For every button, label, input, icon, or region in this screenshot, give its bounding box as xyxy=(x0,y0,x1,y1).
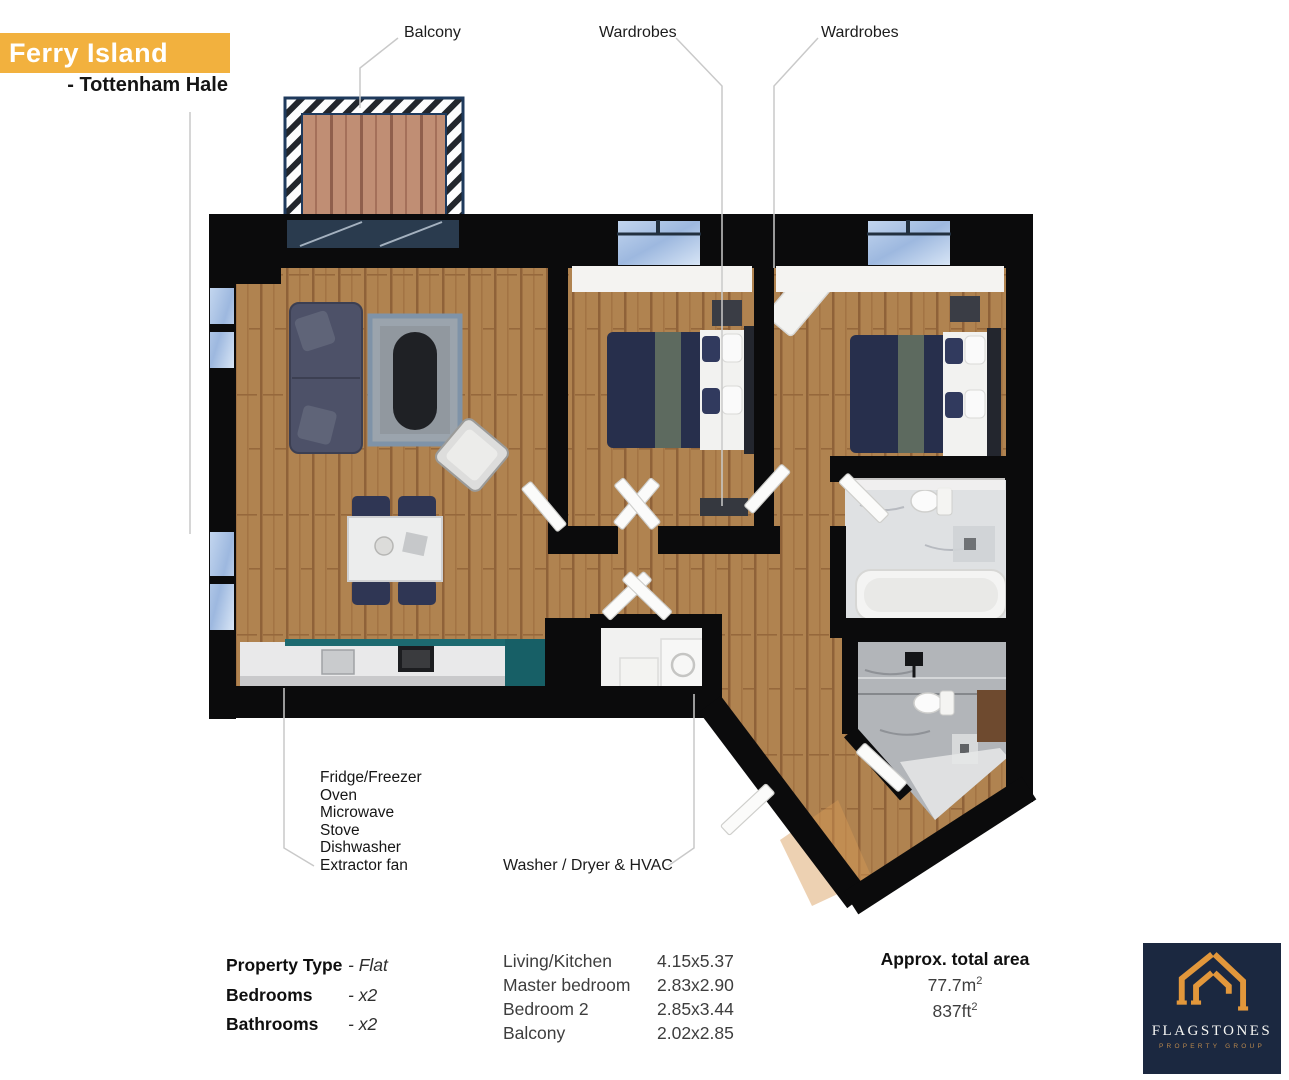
development-banner: Ferry Island xyxy=(0,33,230,73)
property-type-value: - Flat xyxy=(348,955,388,976)
total-area-imperial: 837ft2 xyxy=(872,1001,1038,1022)
appliance-item: Oven xyxy=(320,787,422,805)
total-area-metric: 77.7m2 xyxy=(872,975,1038,996)
appliance-item: Microwave xyxy=(320,804,422,822)
bedrooms-label: Bedrooms xyxy=(226,985,313,1006)
development-name: Ferry Island xyxy=(0,38,168,69)
bathrooms-label: Bathrooms xyxy=(226,1014,318,1035)
logo-name: FLAGSTONES xyxy=(1152,1023,1273,1040)
bedroom2-bed xyxy=(850,328,1001,460)
balcony-glass-door xyxy=(287,220,459,248)
total-area-title: Approx. total area xyxy=(872,949,1038,970)
dim-room-2: Bedroom 2 xyxy=(503,999,589,1020)
floorplan-page: Ferry Island - Tottenham Hale Balcony Wa… xyxy=(0,0,1289,1080)
dim-room-0: Living/Kitchen xyxy=(503,951,612,972)
floor-plan-drawing xyxy=(0,0,1289,1080)
master-nightstand xyxy=(712,300,742,326)
wardrobes-label-2: Wardrobes xyxy=(821,24,899,42)
rug xyxy=(370,316,460,444)
kitchen-appliances-list: Fridge/Freezer Oven Microwave Stove Dish… xyxy=(320,769,422,875)
kitchen-counter xyxy=(240,639,545,691)
wardrobes-label-1: Wardrobes xyxy=(599,24,677,42)
dim-size-1: 2.83x2.90 xyxy=(657,975,734,996)
appliance-item: Fridge/Freezer xyxy=(320,769,422,787)
master-bed xyxy=(607,326,758,454)
master-window xyxy=(617,220,701,266)
utility-label: Washer / Dryer & HVAC xyxy=(503,857,673,875)
bedroom2-nightstand xyxy=(950,296,980,322)
bedroom2-window xyxy=(867,220,951,266)
bathrooms-value: - x2 xyxy=(348,1014,377,1035)
total-area-block: Approx. total area 77.7m2 837ft2 xyxy=(872,949,1038,1022)
dim-room-3: Balcony xyxy=(503,1023,565,1044)
property-type-label: Property Type xyxy=(226,955,342,976)
agency-logo: FLAGSTONES PROPERTY GROUP xyxy=(1143,943,1281,1074)
dim-size-3: 2.02x2.85 xyxy=(657,1023,734,1044)
dim-size-2: 2.85x3.44 xyxy=(657,999,734,1020)
sofa xyxy=(290,303,362,453)
appliance-item: Extractor fan xyxy=(320,857,422,875)
appliance-item: Stove xyxy=(320,822,422,840)
logo-tagline: PROPERTY GROUP xyxy=(1159,1043,1265,1050)
dim-size-0: 4.15x5.37 xyxy=(657,951,734,972)
flagstones-roof-icon xyxy=(1170,943,1254,1021)
bedrooms-value: - x2 xyxy=(348,985,377,1006)
appliance-item: Dishwasher xyxy=(320,839,422,857)
location-subtitle: - Tottenham Hale xyxy=(0,74,228,97)
master-wardrobe xyxy=(700,498,748,516)
balcony-label: Balcony xyxy=(404,24,461,42)
dim-room-1: Master bedroom xyxy=(503,975,630,996)
